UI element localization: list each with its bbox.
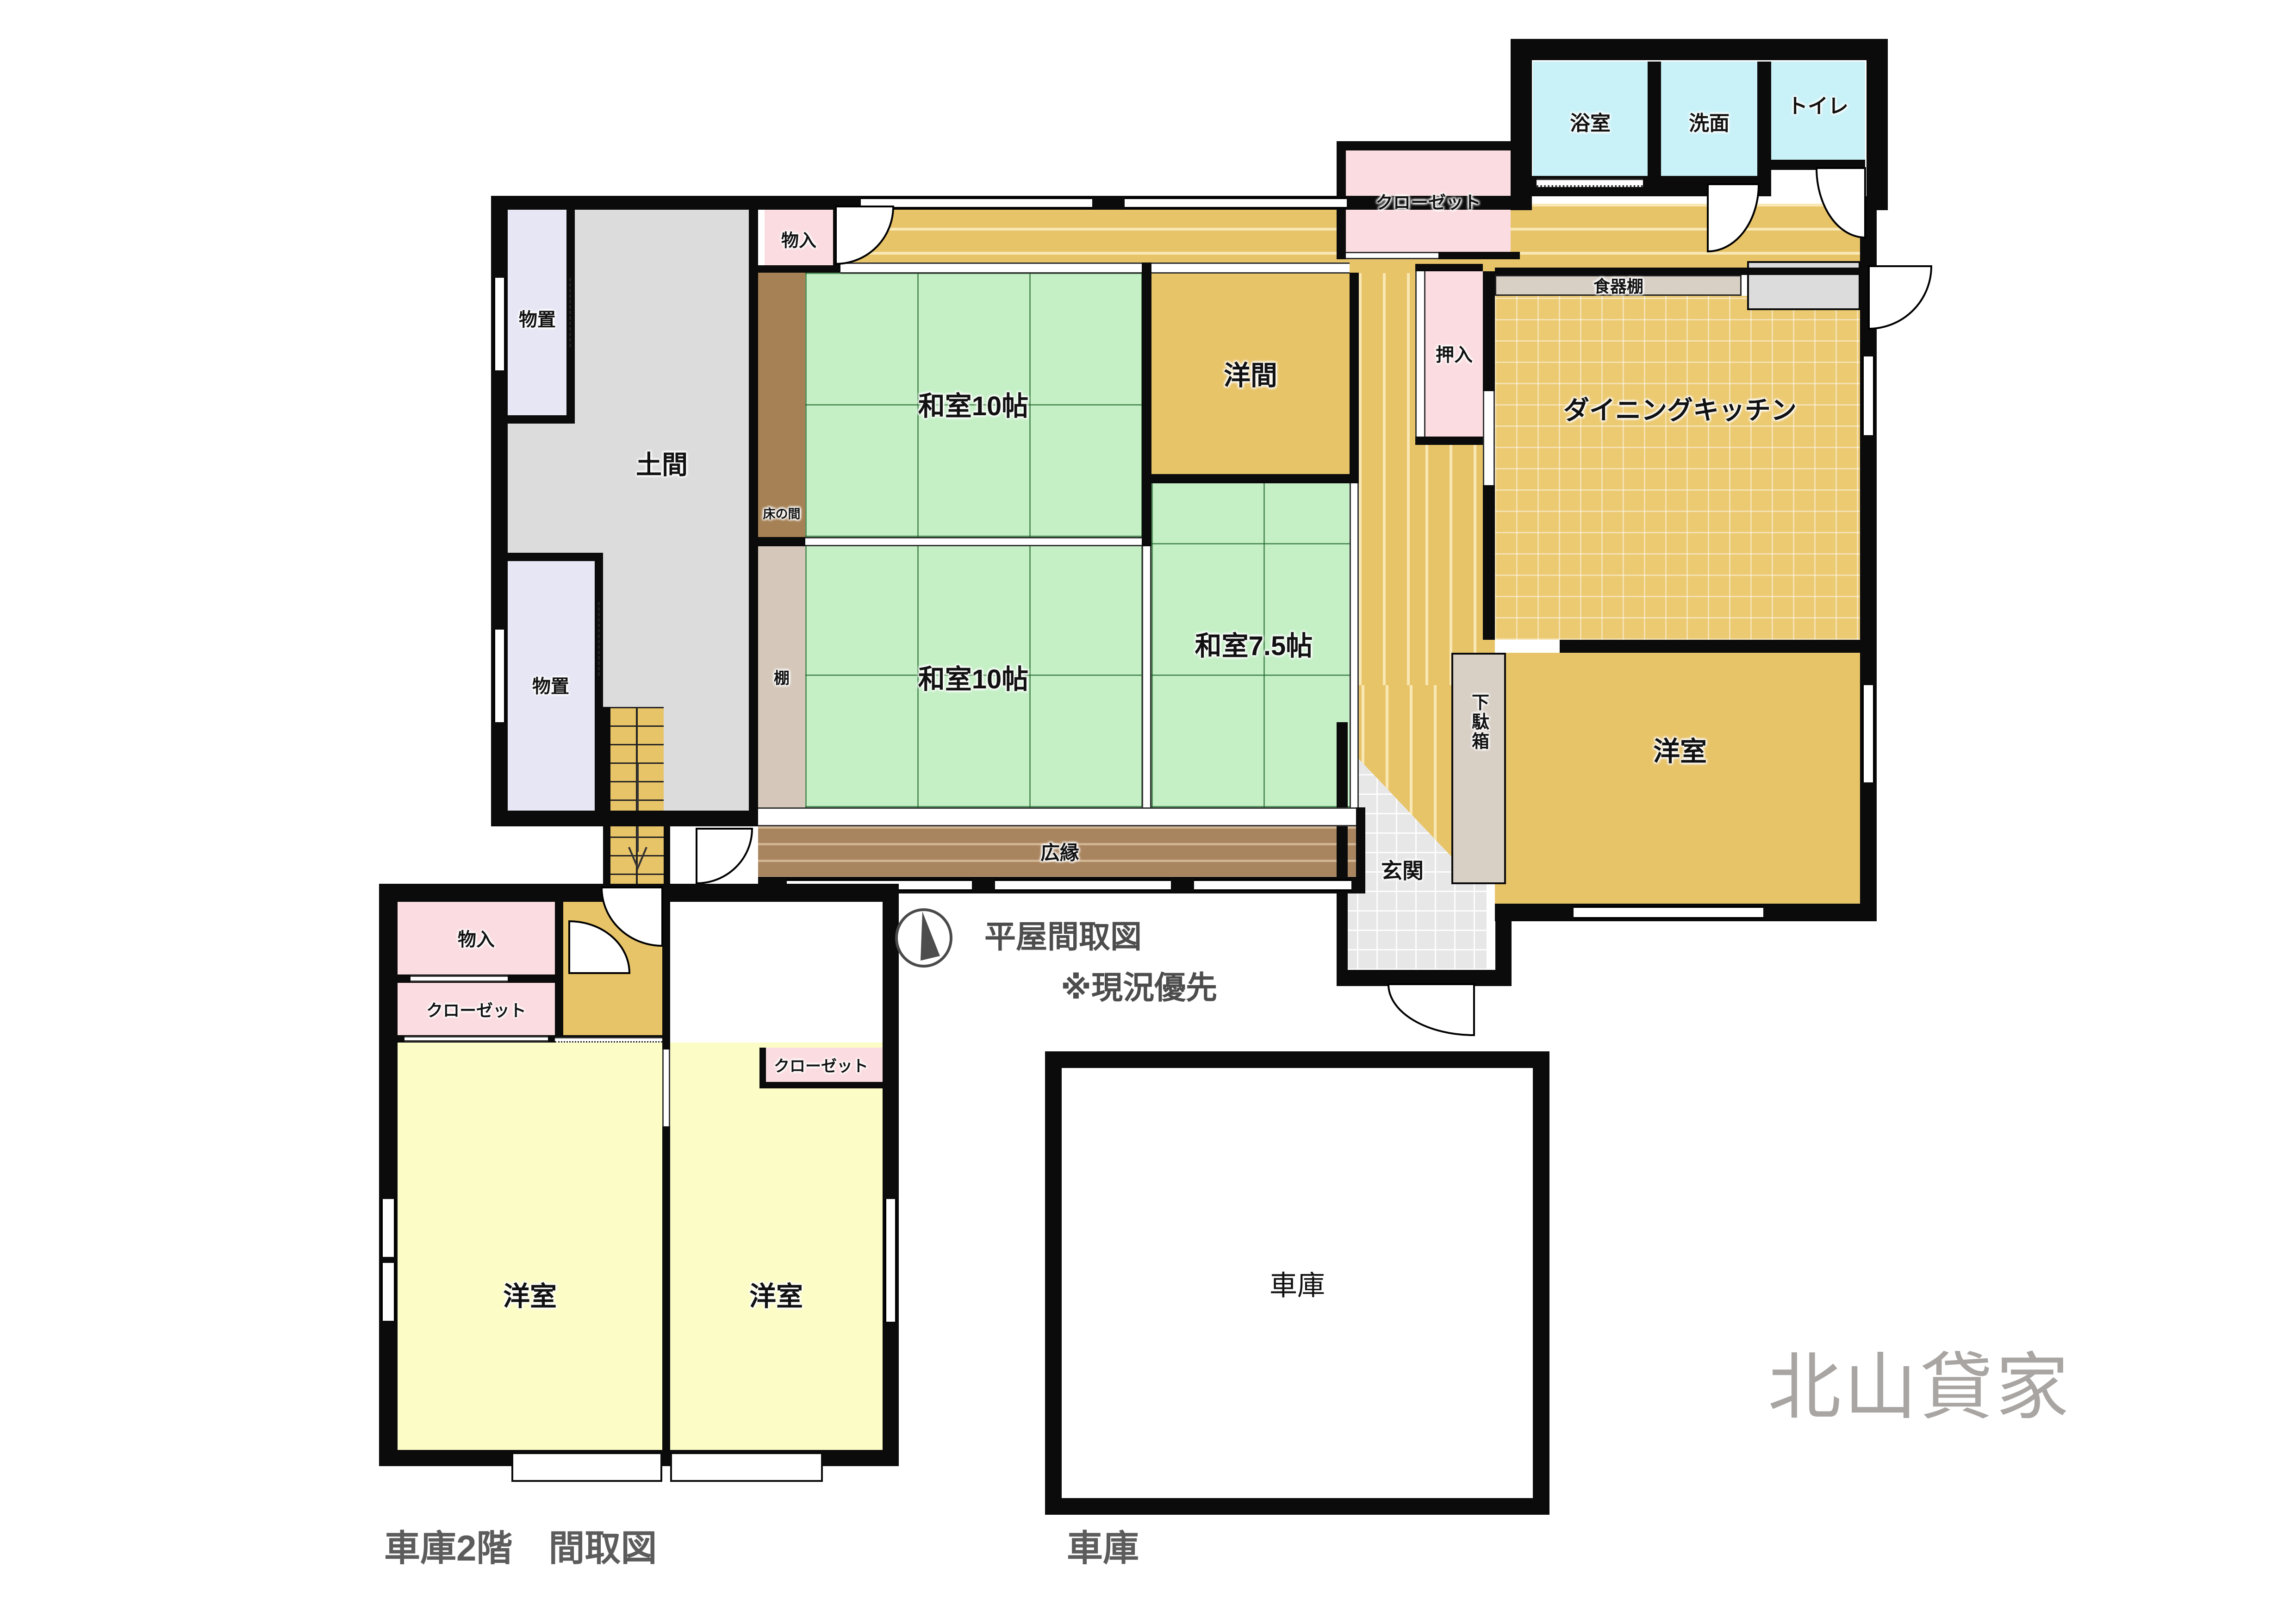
window bbox=[995, 879, 1171, 891]
wall-segment bbox=[664, 811, 670, 884]
garage-caption: 車庫 bbox=[1067, 1519, 1139, 1571]
wall-segment bbox=[749, 210, 758, 811]
sliding-door bbox=[1350, 483, 1359, 807]
room-label: 物入 bbox=[458, 924, 495, 951]
window bbox=[381, 1263, 396, 1321]
annex-youshitsu-right-room bbox=[670, 1043, 883, 1450]
room-label: クローゼット bbox=[1375, 188, 1481, 214]
wall-segment bbox=[1151, 474, 1359, 483]
wall-segment bbox=[1648, 62, 1661, 176]
garage-2f-caption: 車庫2階 間取図 bbox=[384, 1519, 657, 1571]
sliding-door bbox=[404, 1036, 548, 1042]
room-label: 玄関 bbox=[1381, 854, 1424, 885]
room-label: 洋室 bbox=[503, 1274, 557, 1313]
youshitsu-right-room bbox=[1495, 653, 1865, 911]
getabako-cabinet bbox=[1451, 653, 1506, 884]
wall-segment bbox=[759, 1082, 883, 1088]
wall-segment bbox=[1337, 141, 1520, 150]
wall-segment bbox=[1142, 262, 1151, 546]
wall-segment bbox=[1356, 807, 1365, 877]
window bbox=[1125, 197, 1347, 209]
room-label: 食器棚 bbox=[1593, 273, 1643, 297]
wall-segment bbox=[758, 265, 840, 273]
room-label: 和室10帖 bbox=[918, 657, 1029, 696]
wall-segment bbox=[595, 561, 603, 811]
dining-kitchen-room bbox=[1495, 296, 1865, 640]
room-label: 物置 bbox=[532, 671, 569, 698]
window bbox=[381, 1199, 396, 1257]
plan-note: ※現況優先 bbox=[1061, 962, 1217, 1008]
sliding-door-track bbox=[569, 278, 571, 347]
room-label: ダイニングキッチン bbox=[1563, 390, 1797, 427]
door-arc bbox=[1817, 168, 1867, 239]
room-label: 土間 bbox=[636, 444, 688, 482]
room-label: 洗面 bbox=[1689, 106, 1730, 136]
wall-segment bbox=[1415, 264, 1483, 271]
sliding-door bbox=[1537, 179, 1643, 187]
window-bay bbox=[670, 1452, 823, 1482]
wall-segment bbox=[603, 707, 610, 891]
window-bay bbox=[511, 1452, 662, 1482]
door-arc bbox=[836, 206, 895, 266]
door-arc bbox=[1708, 184, 1761, 253]
wall-segment bbox=[491, 811, 758, 826]
plan-title: 平屋間取図 bbox=[984, 911, 1142, 957]
wall-segment bbox=[1867, 39, 1888, 210]
sliding-door bbox=[411, 975, 508, 982]
sliding-door bbox=[805, 537, 1142, 546]
window bbox=[861, 197, 1092, 209]
tokonoma-room bbox=[758, 273, 805, 537]
door-arc bbox=[1869, 266, 1933, 331]
wall-segment bbox=[379, 884, 398, 1466]
window bbox=[1574, 906, 1763, 919]
sliding-door bbox=[1151, 262, 1350, 274]
window bbox=[493, 278, 506, 370]
watermark: 北山貸家 bbox=[1768, 1328, 2072, 1434]
wall-segment bbox=[1511, 39, 1888, 60]
wall-segment bbox=[759, 1048, 766, 1082]
room-label: 押入 bbox=[1436, 340, 1473, 367]
room-label: 広縁 bbox=[1040, 837, 1079, 866]
window bbox=[493, 630, 506, 722]
room-label: 下駄箱 bbox=[1466, 693, 1492, 751]
sliding-door bbox=[758, 807, 1356, 826]
window bbox=[884, 1199, 897, 1322]
wall-segment bbox=[555, 902, 563, 1035]
compass-icon bbox=[895, 909, 954, 968]
room-label: 和室7.5帖 bbox=[1195, 624, 1313, 663]
entrance-door-arc bbox=[1388, 984, 1476, 1037]
room-label: 車庫 bbox=[1269, 1263, 1325, 1304]
room-label: トイレ bbox=[1787, 89, 1848, 119]
wall-segment bbox=[662, 902, 670, 1450]
floor-plan-canvas: 物置 物置 土間 物入 床の間 和室10帖 和室10帖 棚 広縁 洋間 和室7.… bbox=[0, 0, 2296, 1624]
wall-segment bbox=[758, 537, 805, 546]
annex-youshitsu-left-room bbox=[398, 1043, 662, 1450]
door-arc bbox=[697, 829, 754, 885]
sliding-door bbox=[662, 1049, 670, 1126]
sliding-door bbox=[1142, 546, 1151, 807]
room-label: クローゼット bbox=[426, 997, 526, 1021]
sliding-door bbox=[1483, 391, 1495, 485]
sliding-door bbox=[1415, 271, 1425, 437]
room-label: 和室10帖 bbox=[918, 384, 1029, 423]
window bbox=[1194, 879, 1351, 891]
wall-segment bbox=[1757, 62, 1771, 176]
wall-segment bbox=[1495, 921, 1512, 986]
wall-segment bbox=[883, 884, 899, 1466]
door-arc bbox=[569, 921, 631, 975]
room-label: 物入 bbox=[781, 226, 816, 252]
room-label: 洋室 bbox=[749, 1274, 803, 1313]
window bbox=[1862, 356, 1875, 435]
window bbox=[1862, 685, 1875, 782]
wall-segment bbox=[507, 553, 603, 561]
room-label: 物置 bbox=[519, 305, 556, 331]
sliding-door-track bbox=[598, 602, 600, 676]
room-label: 洋室 bbox=[1653, 730, 1707, 768]
sliding-door bbox=[555, 1037, 662, 1043]
wall-segment bbox=[1337, 722, 1348, 986]
sliding-door bbox=[1346, 252, 1438, 259]
room-label: 洋間 bbox=[1224, 354, 1277, 393]
wall-segment bbox=[1560, 640, 1865, 653]
wall-segment bbox=[1350, 273, 1359, 474]
room-label: クローゼット bbox=[774, 1054, 868, 1076]
room-label: 浴室 bbox=[1570, 106, 1611, 136]
wall-segment bbox=[1495, 268, 1865, 275]
room-label: 棚 bbox=[774, 666, 790, 688]
room-label: 床の間 bbox=[763, 504, 801, 522]
wall-segment bbox=[507, 415, 575, 424]
